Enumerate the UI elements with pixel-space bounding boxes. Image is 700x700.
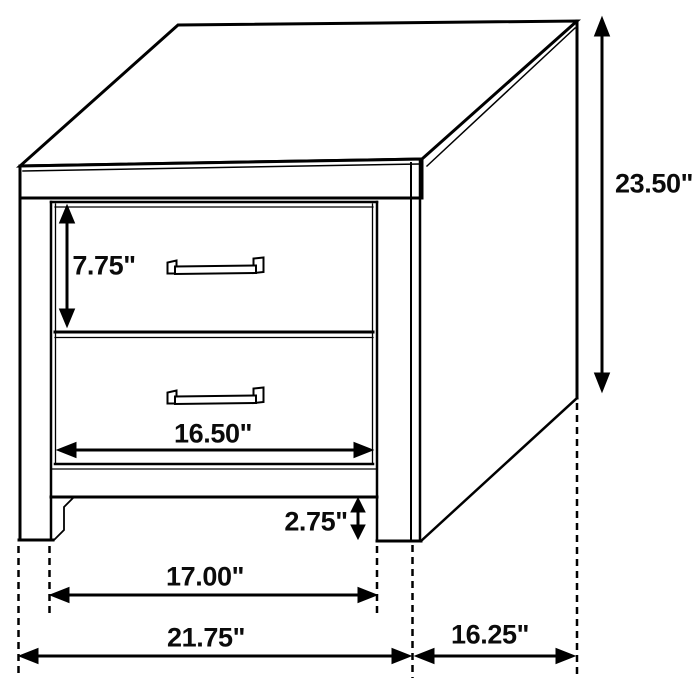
dimension-label-base-clearance: 2.75" <box>284 507 347 538</box>
drawer-handle-top <box>168 258 264 275</box>
dimension-arrow-height <box>595 17 610 392</box>
drawer-handle-bottom <box>168 388 264 405</box>
dimension-label-height: 23.50" <box>615 169 693 200</box>
dimension-label-drawer-width: 16.50" <box>174 419 252 450</box>
dimension-label-overall-width: 21.75" <box>167 623 245 654</box>
dimension-label-inner-leg-width: 17.00" <box>166 562 244 593</box>
dimension-label-overall-depth: 16.25" <box>451 620 529 651</box>
dimension-arrow-base-clearance <box>351 498 365 539</box>
furniture-line-art <box>0 0 700 700</box>
dimension-arrow-overall-depth <box>415 649 575 664</box>
dimension-label-top-drawer-height: 7.75" <box>72 251 135 282</box>
diagram-canvas: 7.75" 23.50" 16.50" 2.75" 17.00" 21.75" … <box>0 0 700 700</box>
